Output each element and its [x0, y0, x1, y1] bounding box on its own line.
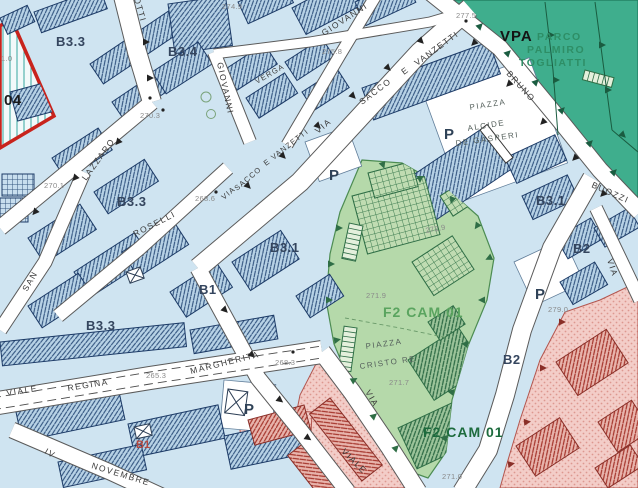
- zone-label-04: 04: [4, 92, 22, 109]
- zone-label-vpa: VPA: [500, 28, 533, 45]
- elevation-1-0: 1.0: [1, 54, 12, 63]
- elevation-268-6: 268.6: [195, 194, 215, 203]
- elevation-271-9: 271.9: [366, 291, 386, 300]
- parking-label-west: P: [329, 167, 339, 184]
- building-footprint: [2, 174, 34, 196]
- survey-point: [161, 108, 164, 111]
- zone-label-b2-1: B2: [573, 241, 591, 256]
- zone-label-b33-1: B3.3: [56, 34, 85, 49]
- zone-label-b33-2: B3.3: [117, 194, 146, 209]
- zoning-map: B3.3 B3.4 B3.3 B3.3 B3.1 B3.1 B1 B2 B2 B…: [0, 0, 638, 488]
- elevation-270-3: 270.3: [140, 111, 160, 120]
- park-name-line2: PALMIRO: [527, 44, 585, 56]
- survey-point: [291, 350, 294, 353]
- survey-point: [148, 96, 151, 99]
- zone-label-b2-2: B2: [503, 352, 521, 367]
- zone-label-f2cam-1: F2 CAM 01: [383, 304, 464, 320]
- zone-label-b1-red: B1: [136, 439, 150, 451]
- elevation-279-0: 279.0: [548, 305, 568, 314]
- elevation-277-5: 277.5: [456, 11, 476, 20]
- zone-label-b31-1: B3.1: [270, 240, 299, 255]
- map-canvas: B3.3 B3.4 B3.3 B3.3 B3.1 B3.1 B1 B2 B2 B…: [0, 0, 638, 488]
- elevation-271-0: 271.0: [442, 472, 462, 481]
- elevation-275-8: 275.8: [322, 47, 342, 56]
- public-building-symbol: [134, 424, 152, 439]
- zone-label-b31-2: B3.1: [536, 193, 565, 208]
- zone-label-b1-1: B1: [199, 282, 217, 297]
- elevation-270-1: 270.1: [44, 181, 64, 190]
- parking-label-east: P: [535, 286, 545, 303]
- park-name-line1: PARCO: [537, 31, 582, 43]
- parking-label-piazza: P: [444, 126, 454, 143]
- elevation-271-7: 271.7: [389, 378, 409, 387]
- zone-label-b33-3: B3.3: [86, 318, 115, 333]
- park-name-line3: TOGLIATTI: [519, 57, 587, 69]
- elevation-274-9: 274.9: [222, 2, 242, 11]
- zone-label-f2cam-2: F2 CAM 01: [423, 424, 504, 440]
- parking-label-viale: P: [244, 401, 254, 418]
- elevation-265-3: 265.3: [146, 371, 166, 380]
- zone-label-b34: B3.4: [168, 44, 198, 59]
- elevation-268-3: 268.3: [275, 358, 295, 367]
